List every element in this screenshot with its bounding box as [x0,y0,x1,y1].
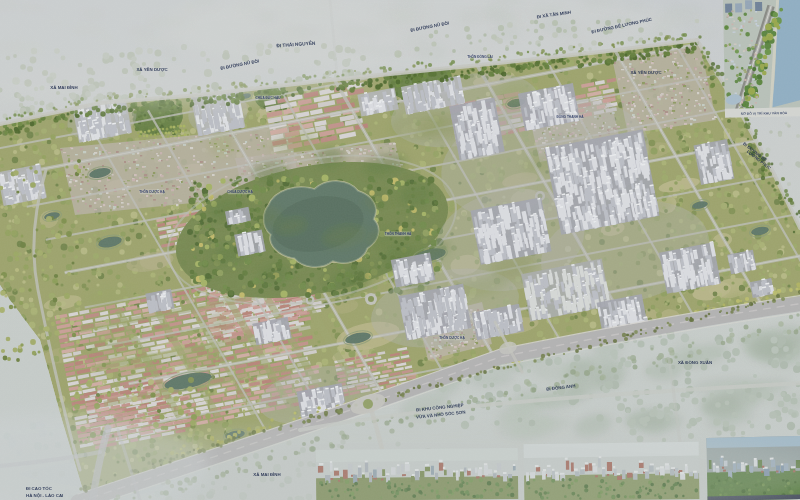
svg-text:THÔN ĐỒNG LAI: THÔN ĐỒNG LAI [467,54,493,59]
svg-text:XÃ MAI ĐÌNH: XÃ MAI ĐÌNH [50,85,77,90]
svg-text:ĐỒNG THANH HÀ: ĐỒNG THANH HÀ [556,114,584,119]
svg-text:THÔN DƯỢC HẠ: THÔN DƯỢC HẠ [139,189,165,194]
svg-text:CHÙA DƯỢC HẠ: CHÙA DƯỢC HẠ [227,189,253,194]
svg-text:XÃ ĐỒNG XUÂN: XÃ ĐỒNG XUÂN [678,360,712,365]
svg-text:XÃ MAI ĐÌNH: XÃ MAI ĐÌNH [253,472,280,477]
svg-text:XÃ YÊN DƯỢC: XÃ YÊN DƯỢC [136,67,168,72]
svg-text:THÔN THANH HÀ: THÔN THANH HÀ [385,231,412,236]
svg-text:THÔN DƯỢC HẠ: THÔN DƯỢC HẠ [439,335,465,340]
svg-text:ĐI CAO TỐC: ĐI CAO TỐC [26,486,53,491]
svg-text:CHÙA ĐỨC HẬU: CHÙA ĐỨC HẬU [255,95,281,100]
svg-text:HÀ NỘI - LÀO CAI: HÀ NỘI - LÀO CAI [26,493,63,498]
svg-text:XÃ YÊN DƯỢC: XÃ YÊN DƯỢC [630,70,662,75]
